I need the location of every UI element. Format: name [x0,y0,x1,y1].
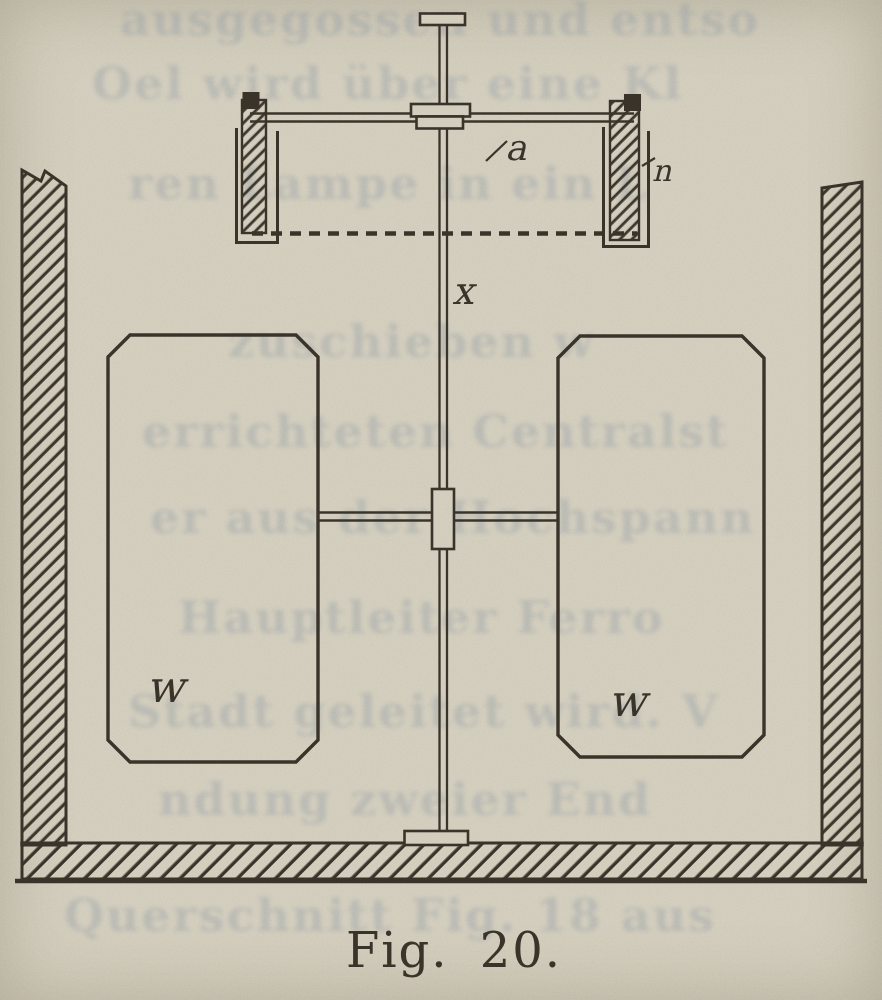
label-left-block: w [146,661,189,712]
hub-plate-lower [417,117,464,129]
label-a-leader [486,141,507,161]
vessel-right-wall [822,182,862,845]
label-post: n [652,153,672,188]
shaft-collar [432,489,454,549]
shaft-foot-plate [405,831,469,845]
vessel-floor [22,843,862,879]
stirrer-shaft [440,25,448,834]
t-handle-bar [420,14,465,26]
left-block [108,335,318,762]
label-arm: a [505,127,527,168]
right-hatched-rod [610,101,639,240]
right-block [558,336,764,757]
figure-20-diagram: a n x w w [0,0,882,1000]
hub-plate-upper [411,104,470,117]
figure-caption: Fig. 20. [0,922,882,978]
label-shaft: x [452,269,478,313]
label-right-block: w [608,675,651,726]
vessel-left-wall [22,170,66,845]
scanned-book-page: ausgegossen und entso Oel wird über eine… [0,0,882,1000]
left-hatched-rod [242,100,266,233]
